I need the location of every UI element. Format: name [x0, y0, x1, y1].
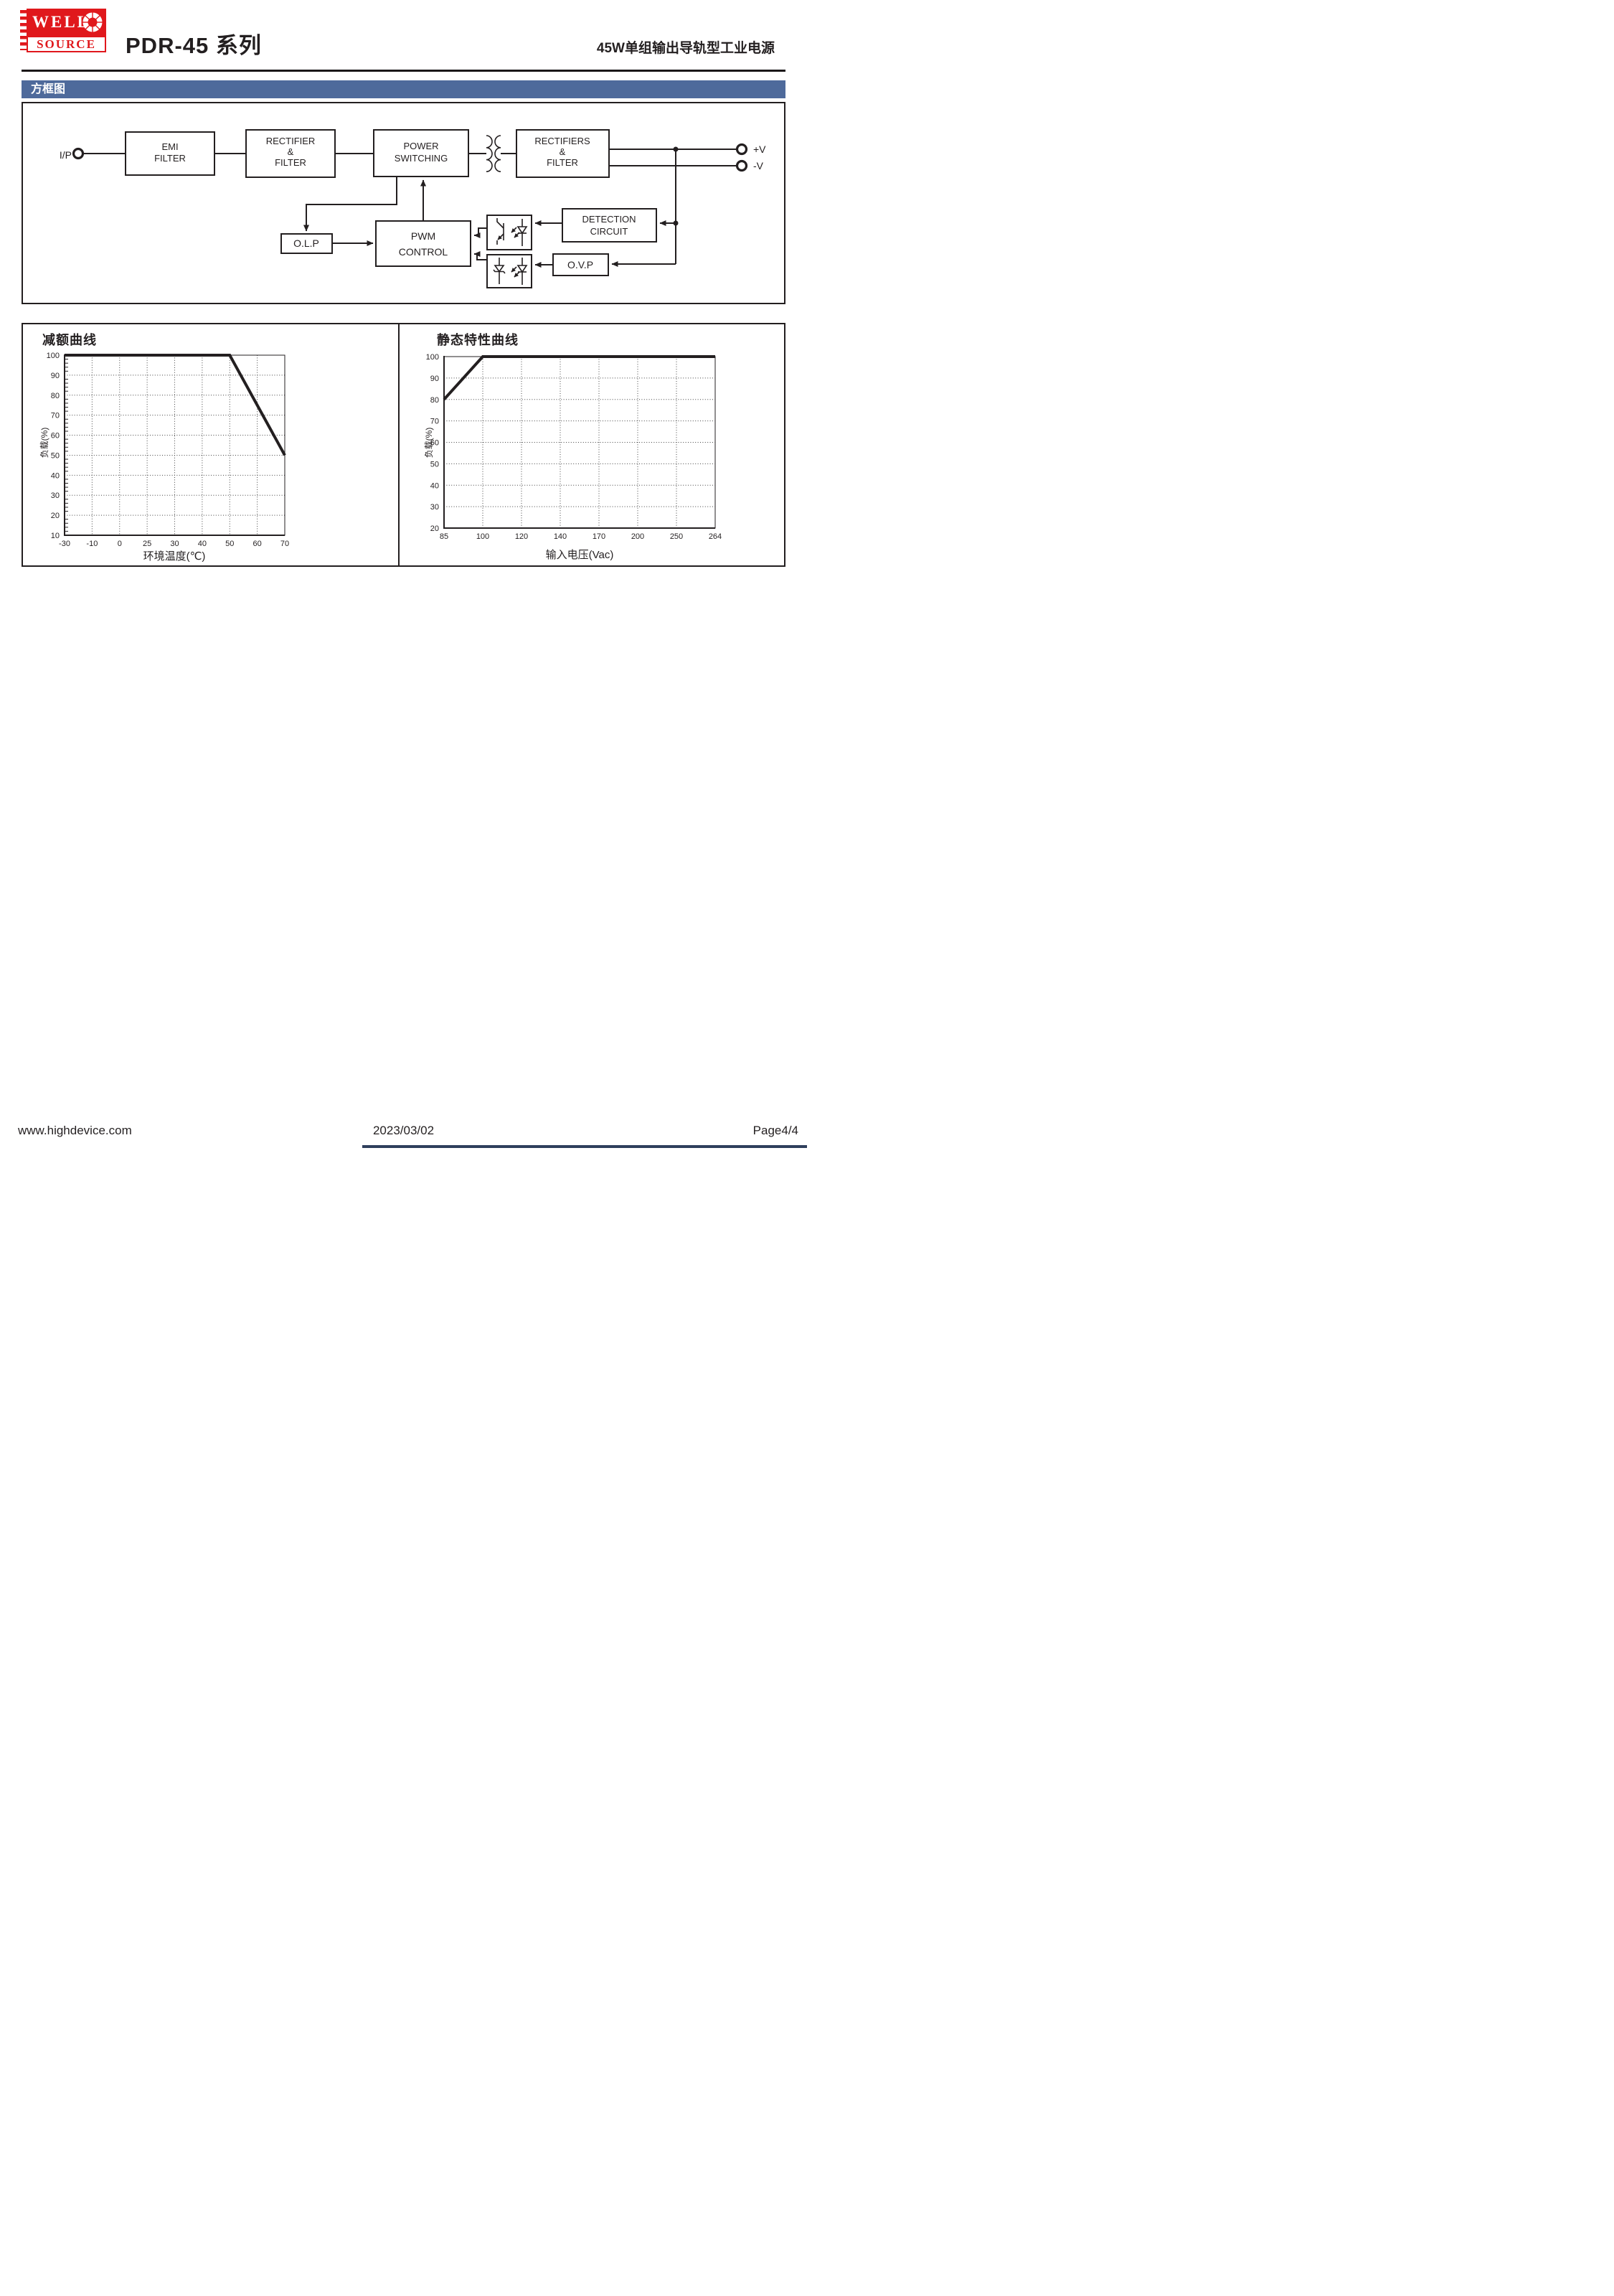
y-tick-label: 60 — [51, 432, 60, 441]
input-label: I/P — [60, 149, 72, 161]
block-pwm-control — [376, 221, 471, 266]
transformer-icon — [486, 136, 501, 171]
optocoupler-phototransistor-icon — [487, 215, 532, 250]
junction-dot — [674, 221, 679, 226]
page-bottom-edge — [362, 1145, 807, 1148]
static-chart-xlabel: 输入电压(Vac) — [508, 547, 651, 562]
svg-text:&: & — [560, 146, 566, 157]
y-tick-label: 90 — [51, 372, 60, 380]
curve-load-vs-input-voltage — [444, 357, 715, 400]
header-divider — [22, 70, 785, 72]
detection-circuit-label: DETECTION — [582, 214, 636, 225]
emi-filter-label: EMI — [161, 141, 178, 152]
y-tick-label: 90 — [430, 375, 439, 383]
svg-text:&: & — [288, 146, 294, 157]
output-neg-label: -V — [753, 160, 764, 171]
y-tick-label: 100 — [47, 352, 60, 360]
x-tick-label: 140 — [554, 532, 567, 541]
logo-word-source: SOURCE — [27, 36, 106, 52]
output-pos-label: +V — [753, 143, 766, 155]
y-tick-label: 70 — [51, 412, 60, 420]
y-tick-label: 20 — [430, 524, 439, 533]
block-diagram-frame: I/P +V -V EMI FILTER RECTIFIER & FILTER … — [22, 102, 785, 304]
output-neg-terminal — [737, 161, 747, 171]
charts-divider — [398, 324, 400, 565]
block-diagram: I/P +V -V EMI FILTER RECTIFIER & FILTER … — [23, 103, 784, 303]
logo-red-box: WELL — [27, 9, 106, 36]
derating-chart-ylabel: 负载(%) — [38, 400, 48, 486]
y-tick-label: 20 — [51, 512, 60, 520]
x-tick-label: 40 — [198, 540, 207, 548]
svg-text:FILTER: FILTER — [275, 157, 306, 168]
footer-page-number: Page4/4 — [753, 1124, 798, 1138]
optocoupler-zener-icon — [487, 255, 532, 288]
section-banner-block-diagram: 方框图 — [22, 80, 785, 98]
output-pos-terminal — [737, 145, 747, 154]
datasheet-page: WELL SOURCE PDR-45 系列 45W单组输出导轨型工业电源 方框图 — [0, 0, 807, 1148]
svg-text:FILTER: FILTER — [547, 157, 578, 168]
input-terminal — [74, 149, 83, 159]
y-tick-label: 100 — [426, 353, 439, 362]
x-tick-label: 250 — [670, 532, 683, 541]
power-switching-label: POWER — [403, 141, 438, 151]
ovp-label: O.V.P — [567, 259, 593, 270]
x-tick-label: 0 — [118, 540, 122, 548]
x-tick-label: -30 — [59, 540, 70, 548]
x-tick-label: 200 — [631, 532, 644, 541]
logo-ring-icon — [81, 11, 104, 34]
pwm-control-label: PWM — [411, 230, 435, 242]
y-tick-label: 80 — [51, 392, 60, 400]
static-characteristic-chart: 1009080706050403020851001201401702002502… — [403, 331, 780, 565]
charts-frame: 减额曲线 100908070605040302010-30-1002530405… — [22, 323, 785, 567]
x-tick-label: 85 — [440, 532, 448, 541]
x-tick-label: 60 — [253, 540, 262, 548]
svg-text:FILTER: FILTER — [154, 153, 186, 164]
rectifiers-filter-label: RECTIFIERS — [534, 136, 590, 146]
static-chart-ylabel: 负载(%) — [423, 400, 433, 486]
footer-date: 2023/03/02 — [0, 1124, 807, 1138]
derating-chart-xlabel: 环境温度(℃) — [103, 548, 246, 563]
x-tick-label: 30 — [170, 540, 179, 548]
x-tick-label: 264 — [709, 532, 722, 541]
svg-text:SWITCHING: SWITCHING — [395, 153, 448, 164]
y-tick-label: 40 — [51, 471, 60, 480]
svg-text:CONTROL: CONTROL — [399, 246, 448, 258]
x-tick-label: -10 — [86, 540, 98, 548]
page-subtitle: 45W单组输出导轨型工业电源 — [597, 37, 775, 57]
logo-notch-strip — [20, 10, 27, 50]
x-tick-label: 50 — [225, 540, 234, 548]
y-tick-label: 50 — [51, 451, 60, 460]
y-tick-label: 30 — [430, 503, 439, 512]
page-title: PDR-45 系列 — [126, 27, 262, 60]
y-tick-label: 30 — [51, 491, 60, 500]
x-tick-label: 70 — [280, 540, 289, 548]
junction-dot — [674, 147, 679, 152]
plot-frame — [444, 357, 715, 528]
derating-curve-chart: 100908070605040302010-30-100253040506070 — [30, 331, 392, 565]
olp-label: O.L.P — [293, 237, 319, 249]
svg-text:CIRCUIT: CIRCUIT — [590, 226, 628, 237]
x-tick-label: 100 — [476, 532, 489, 541]
company-logo: WELL SOURCE — [20, 7, 108, 53]
rectifier-filter-label: RECTIFIER — [266, 136, 316, 146]
x-tick-label: 170 — [593, 532, 605, 541]
x-tick-label: 120 — [515, 532, 528, 541]
x-tick-label: 25 — [143, 540, 151, 548]
